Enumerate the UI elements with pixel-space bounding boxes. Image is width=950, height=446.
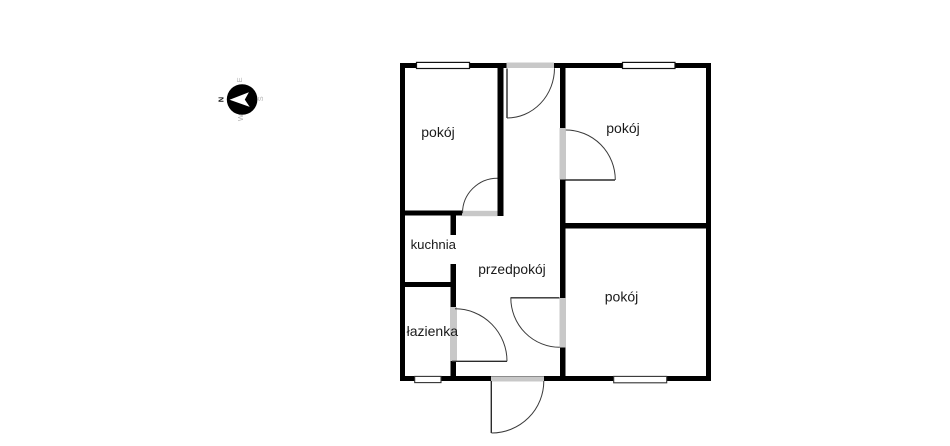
svg-text:N: N: [216, 97, 225, 102]
svg-text:E: E: [235, 77, 244, 82]
svg-text:pokój: pokój: [606, 120, 639, 136]
svg-text:S: S: [256, 96, 265, 101]
svg-text:pokój: pokój: [605, 289, 638, 305]
svg-text:przedpokój: przedpokój: [478, 262, 546, 277]
svg-text:kuchnia: kuchnia: [411, 237, 457, 252]
svg-text:łazienka: łazienka: [407, 323, 459, 339]
svg-text:W: W: [236, 113, 245, 121]
svg-text:pokój: pokój: [421, 124, 454, 140]
